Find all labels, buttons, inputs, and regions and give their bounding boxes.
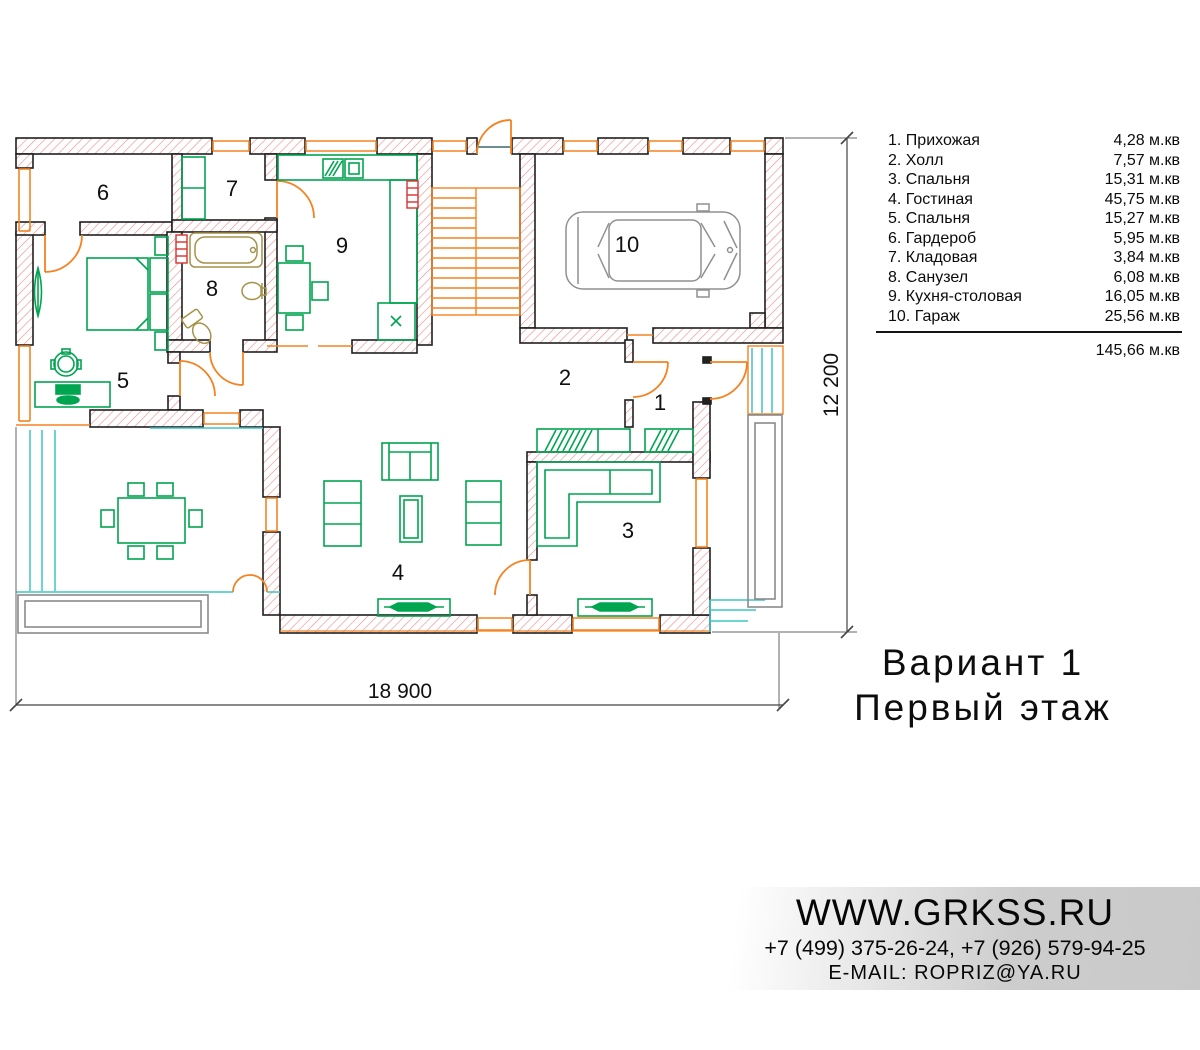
- title-variant: Вариант 1: [780, 640, 1186, 685]
- legend-row: 9. Кухня-столовая16,05 м.кв: [876, 287, 1182, 307]
- legend-row: 6. Гардероб5,95 м.кв: [876, 229, 1182, 249]
- legend-room-name: 7. Кладовая: [888, 248, 977, 268]
- room-label: 1: [654, 390, 666, 415]
- legend-row: 10. Гараж25,56 м.кв: [876, 307, 1182, 327]
- window-icon: [649, 141, 682, 151]
- door-icon: [277, 181, 314, 218]
- porch-frame: [748, 346, 783, 414]
- legend-room-name: 4. Гостиная: [888, 190, 973, 210]
- legend-room-area: 7,57 м.кв: [1113, 151, 1180, 171]
- double-door-icon: [233, 575, 267, 592]
- email-address: E-MAIL: ROPRIZ@YA.RU: [828, 961, 1081, 985]
- legend-room-name: 5. Спальня: [888, 209, 970, 229]
- cabinet: [324, 481, 361, 546]
- door-icon: [477, 120, 511, 154]
- legend-row: 5. Спальня15,27 м.кв: [876, 209, 1182, 229]
- room-legend: 1. Прихожая4,28 м.кв 2. Холл7,57 м.кв 3.…: [876, 131, 1182, 360]
- window-icon: [564, 141, 597, 151]
- car-icon: [566, 204, 740, 297]
- corner-sofa: [537, 462, 660, 546]
- legend-room-name: 9. Кухня-столовая: [888, 287, 1022, 307]
- title-floor: Первый этаж: [780, 685, 1186, 730]
- dining-table: [101, 483, 202, 559]
- tv-cabinet: [378, 599, 450, 616]
- legend-row: 1. Прихожая4,28 м.кв: [876, 131, 1182, 151]
- door-icon: [210, 352, 243, 385]
- sofa: [382, 443, 438, 480]
- legend-room-area: 16,05 м.кв: [1105, 287, 1180, 307]
- website-url: WWW.GRKSS.RU: [796, 893, 1114, 933]
- legend-total: 145,66 м.кв: [876, 341, 1182, 360]
- doors: [45, 120, 747, 595]
- window-icon: [306, 141, 376, 151]
- legend-row: 7. Кладовая3,84 м.кв: [876, 248, 1182, 268]
- legend-room-name: 8. Санузел: [888, 268, 968, 288]
- sink: [242, 283, 266, 300]
- legend-room-name: 2. Холл: [888, 151, 944, 171]
- window-icon: [204, 413, 239, 424]
- cabinet: [466, 481, 501, 545]
- kitchen-table: [278, 246, 328, 330]
- legend-row: 4. Гостиная45,75 м.кв: [876, 190, 1182, 210]
- radiator-icon: [407, 181, 418, 208]
- kitchen-counter: [278, 155, 417, 303]
- plant-icon: [35, 268, 42, 316]
- legend-room-name: 10. Гараж: [888, 307, 960, 327]
- staircase: [432, 188, 520, 315]
- room-label: 10: [615, 232, 639, 257]
- room-label: 5: [117, 368, 129, 393]
- closet: [537, 429, 630, 452]
- legend-room-name: 1. Прихожая: [888, 131, 980, 151]
- radiator-icon: [176, 235, 187, 263]
- room-label: 3: [622, 518, 634, 543]
- legend-room-area: 5,95 м.кв: [1113, 229, 1180, 249]
- window-icon: [478, 618, 512, 630]
- pot-icon: [51, 349, 81, 376]
- desk: [35, 382, 110, 407]
- legend-room-area: 45,75 м.кв: [1105, 190, 1180, 210]
- legend-row: 3. Спальня15,31 м.кв: [876, 170, 1182, 190]
- window-icon: [19, 346, 30, 421]
- window-icon: [573, 618, 659, 630]
- legend-room-area: 4,28 м.кв: [1113, 131, 1180, 151]
- legend-room-area: 3,84 м.кв: [1113, 248, 1180, 268]
- room-label: 7: [226, 176, 238, 201]
- legend-room-name: 6. Гардероб: [888, 229, 976, 249]
- room-label: 6: [97, 180, 109, 205]
- bathtub: [190, 233, 262, 267]
- wardrobe: [182, 157, 205, 219]
- room-label: 9: [336, 233, 348, 258]
- bathroom-fixtures: [181, 233, 266, 347]
- window-icon: [433, 141, 466, 151]
- page: 18 900 12 200 1 2 3 4 5 6 7 8 9 10 1. Пр…: [0, 0, 1200, 1050]
- room-label: 8: [206, 276, 218, 301]
- legend-divider: [876, 331, 1182, 333]
- legend-room-area: 6,08 м.кв: [1113, 268, 1180, 288]
- contact-block: WWW.GRKSS.RU +7 (499) 375-26-24, +7 (926…: [710, 887, 1200, 990]
- legend-room-area: 15,31 м.кв: [1105, 170, 1180, 190]
- fridge: [378, 303, 415, 340]
- legend-room-area: 25,56 м.кв: [1105, 307, 1180, 327]
- legend-room-area: 15,27 м.кв: [1105, 209, 1180, 229]
- drawing-title: Вариант 1 Первый этаж: [780, 640, 1186, 730]
- door-icon: [180, 361, 215, 396]
- room-label: 2: [559, 365, 571, 390]
- phone-numbers: +7 (499) 375-26-24, +7 (926) 579-94-25: [764, 935, 1145, 961]
- bed: [87, 237, 168, 350]
- window-icon: [731, 141, 764, 151]
- coffee-table: [400, 496, 422, 542]
- door-icon: [495, 560, 530, 595]
- legend-room-name: 3. Спальня: [888, 170, 970, 190]
- window-icon: [266, 498, 277, 531]
- legend-row: 2. Холл7,57 м.кв: [876, 151, 1182, 171]
- door-icon: [710, 362, 747, 399]
- dimension-width-label: 18 900: [368, 680, 432, 703]
- window-icon: [213, 141, 249, 151]
- door-icon: [45, 235, 82, 272]
- tv-cabinet: [578, 599, 652, 616]
- window-icon: [696, 479, 707, 547]
- dimension-height-label: 12 200: [820, 353, 843, 417]
- legend-row: 8. Санузел6,08 м.кв: [876, 268, 1182, 288]
- room-label: 4: [392, 560, 404, 585]
- closet: [645, 429, 693, 452]
